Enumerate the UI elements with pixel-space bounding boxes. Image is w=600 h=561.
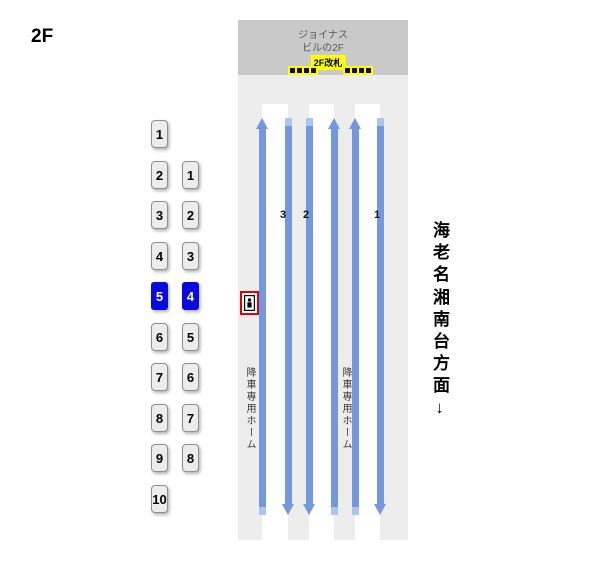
gate-unit-icon (311, 68, 316, 73)
down-arrow-icon (374, 504, 386, 515)
track-line-body (352, 128, 359, 507)
destination-text: 湘南台方面 (430, 288, 449, 398)
track-line-body (331, 128, 338, 507)
track-line-body (259, 128, 266, 507)
track-line-up (352, 118, 359, 515)
gate-unit-icon (304, 68, 309, 73)
track-line-end (331, 507, 338, 515)
track-line-body (285, 126, 292, 505)
track-line-down (285, 118, 292, 515)
track-line-down (377, 118, 384, 515)
down-arrow-icon (282, 504, 294, 515)
building-name-line2: ビルの2F (238, 42, 408, 55)
car-number-box: 2 (151, 161, 168, 189)
track-line-up (331, 118, 338, 515)
track-line-end (377, 118, 384, 126)
track-line-down (306, 118, 313, 515)
track-line-end (352, 507, 359, 515)
car-number-box: 5 (182, 323, 199, 351)
up-arrow-icon (328, 118, 340, 129)
gate-unit-icon (352, 68, 357, 73)
up-arrow-icon (256, 118, 268, 129)
track-line-end (306, 118, 313, 126)
car-number-box: 6 (182, 363, 199, 391)
car-number-box: 10 (151, 485, 168, 513)
car-number-box-highlighted: 5 (151, 282, 168, 310)
gate-unit-icon (366, 68, 371, 73)
car-number-box: 1 (182, 161, 199, 189)
car-number-box: 2 (182, 201, 199, 229)
car-number-box: 4 (151, 242, 168, 270)
down-arrow-glyph: ↓ (430, 398, 449, 422)
station-floor-map: 2F ジョイナス ビルの2F 2F改札 321降車専用ホーム降車専用ホーム 12… (0, 0, 600, 561)
gate-unit-icon (290, 68, 295, 73)
up-arrow-icon (349, 118, 361, 129)
destination-text-ebina: 海老名 (427, 221, 452, 287)
elevator-icon (244, 295, 255, 311)
car-number-box: 9 (151, 444, 168, 472)
car-number-box: 7 (151, 363, 168, 391)
car-number-box: 3 (151, 201, 168, 229)
floor-label: 2F (31, 26, 53, 48)
track-line-body (306, 126, 313, 505)
track-line-end (259, 507, 266, 515)
ticket-gate-group (288, 66, 318, 75)
track-number: 2 (298, 209, 314, 221)
gate-unit-icon (345, 68, 350, 73)
car-number-box: 1 (151, 120, 168, 148)
elevator-marker (240, 291, 259, 315)
alighting-platform-label: 降車専用ホーム (243, 367, 257, 451)
track-line-body (377, 126, 384, 505)
track-line-up (259, 118, 266, 515)
ticket-gate-group (343, 66, 373, 75)
building-name-line1: ジョイナス (238, 29, 408, 42)
track-number: 3 (275, 209, 291, 221)
track-line-end (285, 118, 292, 126)
car-number-box: 3 (182, 242, 199, 270)
destination-text-shonandai: 湘南台方面↓ (427, 288, 452, 422)
car-number-box: 8 (182, 444, 199, 472)
car-number-box: 6 (151, 323, 168, 351)
car-number-box: 8 (151, 404, 168, 432)
car-number-box: 7 (182, 404, 199, 432)
gate-unit-icon (359, 68, 364, 73)
down-arrow-icon (303, 504, 315, 515)
alighting-platform-label: 降車専用ホーム (339, 367, 353, 451)
track-number: 1 (369, 209, 385, 221)
car-number-box-highlighted: 4 (182, 282, 199, 310)
gate-unit-icon (297, 68, 302, 73)
